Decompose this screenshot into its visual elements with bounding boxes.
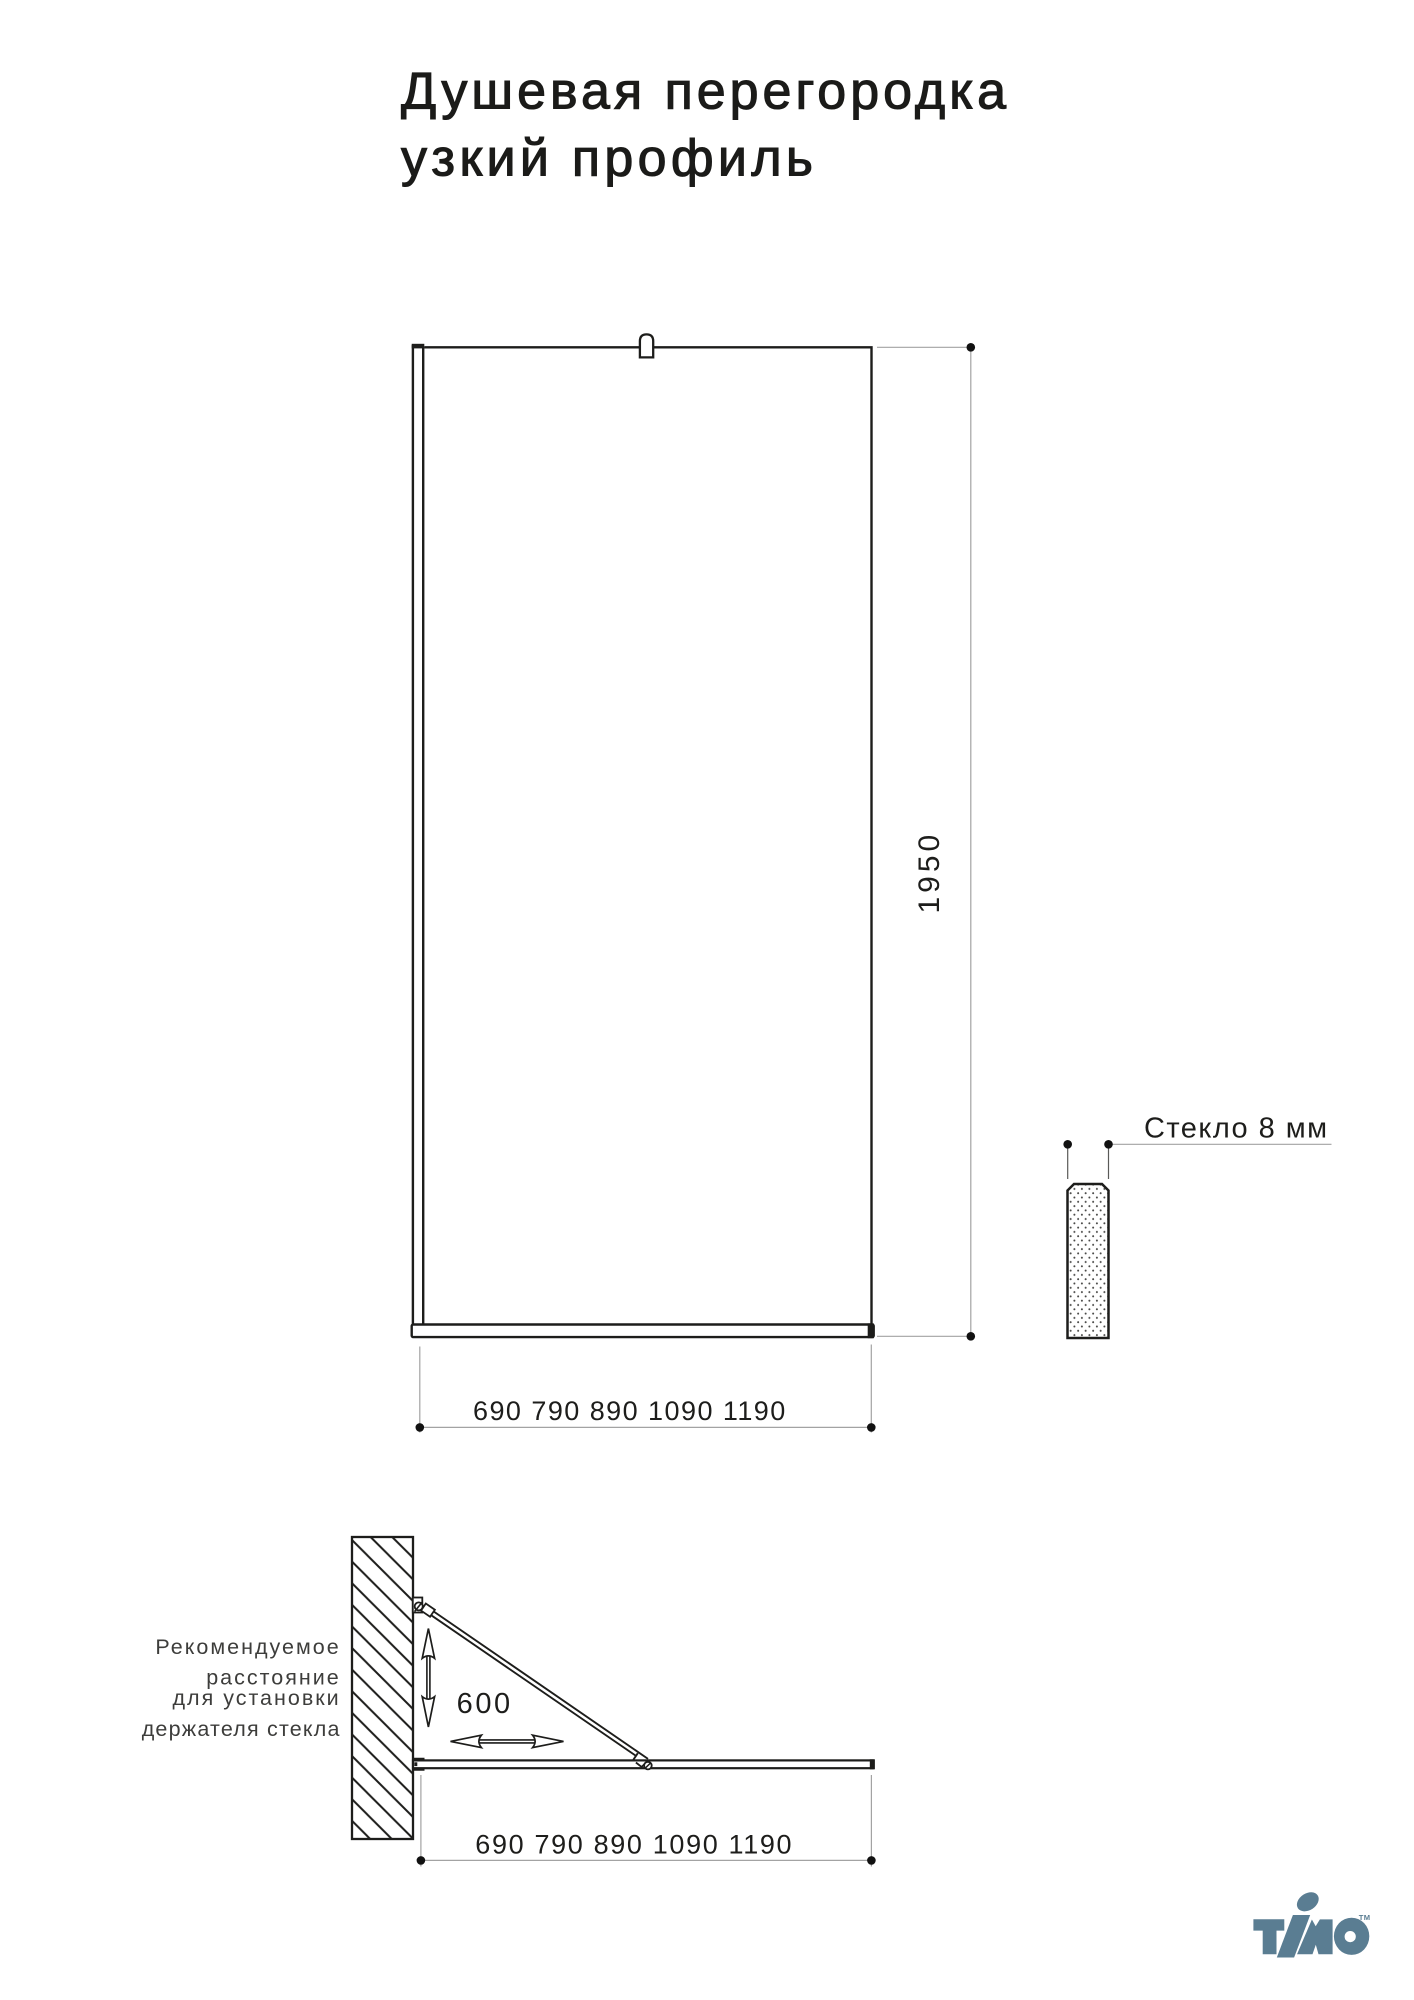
svg-text:600: 600 [457, 1688, 513, 1720]
svg-text:Душевая перегородка: Душевая перегородка [401, 63, 1010, 121]
svg-text:690 790 890 1090 1190: 690 790 890 1090 1190 [473, 1396, 787, 1426]
svg-text:690 790 890 1090 1190: 690 790 890 1090 1190 [475, 1830, 793, 1860]
svg-text:TM: TM [1359, 1913, 1371, 1922]
svg-text:Стекло 8 мм: Стекло 8 мм [1144, 1113, 1328, 1145]
svg-text:держателя стекла: держателя стекла [142, 1717, 341, 1741]
svg-text:Рекомендуемое: Рекомендуемое [155, 1635, 340, 1659]
svg-text:для установки: для установки [172, 1686, 340, 1710]
svg-text:1950: 1950 [913, 831, 946, 914]
svg-text:узкий профиль: узкий профиль [401, 130, 817, 188]
